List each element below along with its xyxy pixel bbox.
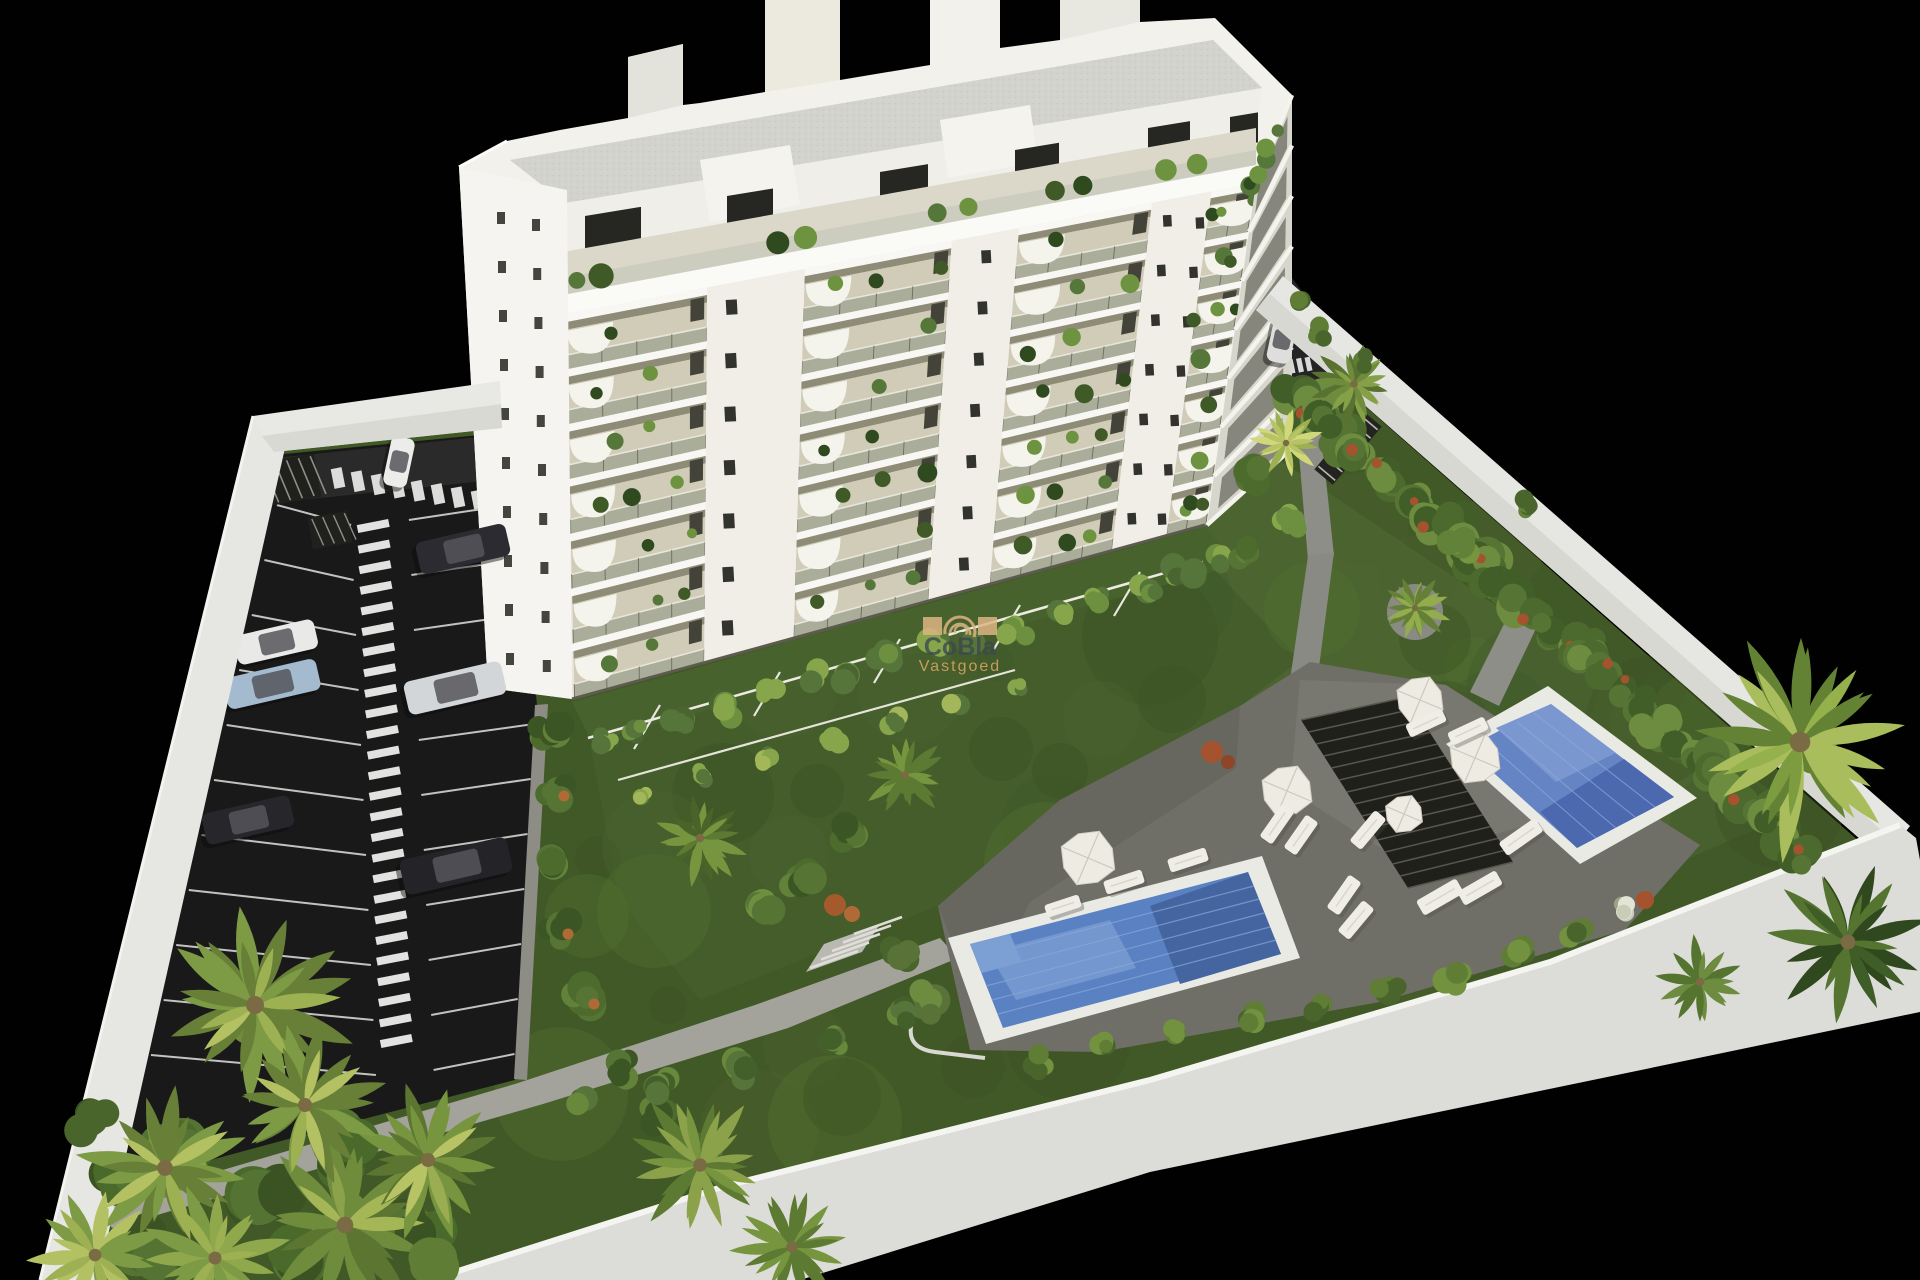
svg-text:Vastgoed: Vastgoed: [919, 658, 1001, 675]
svg-text:CoBla: CoBla: [924, 633, 997, 661]
